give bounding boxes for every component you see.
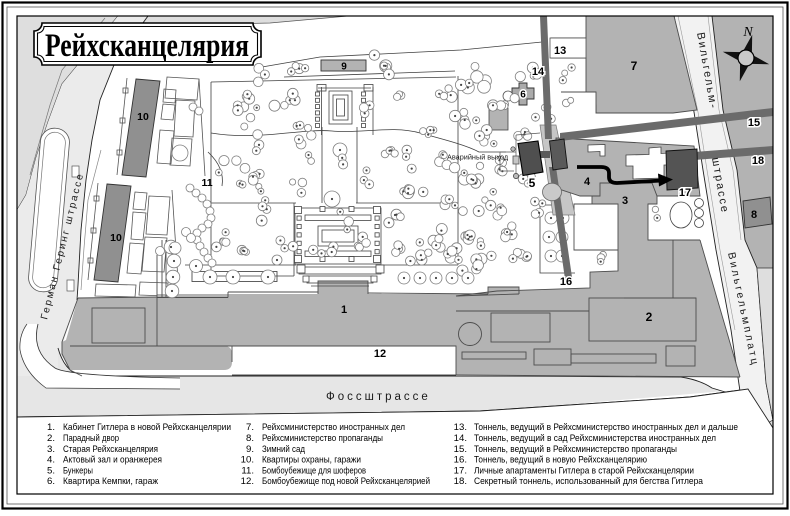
svg-text:Рейхсминистерство пропаганды: Рейхсминистерство пропаганды	[262, 433, 383, 444]
svg-text:6: 6	[520, 90, 526, 101]
svg-text:12: 12	[374, 348, 386, 360]
svg-text:Актовый зал и оранжерея: Актовый зал и оранжерея	[63, 455, 162, 466]
svg-text:3.: 3.	[47, 444, 55, 455]
svg-text:Зимний сад: Зимний сад	[262, 444, 305, 455]
svg-text:2: 2	[646, 310, 653, 324]
svg-text:Секретный тоннель, использован: Секретный тоннель, использованный для бе…	[474, 476, 704, 487]
svg-text:5: 5	[529, 176, 536, 190]
svg-text:Личные апартаменты Гитлера в с: Личные апартаменты Гитлера в старой Рейх…	[474, 465, 694, 476]
svg-text:18.: 18.	[454, 476, 467, 487]
svg-text:Квартира Кемпки, гараж: Квартира Кемпки, гараж	[63, 476, 159, 487]
svg-text:10.: 10.	[241, 455, 254, 466]
svg-text:8.: 8.	[246, 433, 254, 444]
svg-text:14.: 14.	[454, 433, 467, 444]
svg-text:16: 16	[560, 276, 572, 288]
svg-text:1.: 1.	[47, 422, 55, 433]
svg-text:15.: 15.	[454, 444, 467, 455]
svg-text:3: 3	[622, 195, 628, 207]
svg-text:9.: 9.	[246, 444, 254, 455]
svg-text:8: 8	[751, 209, 757, 221]
svg-text:Квартиры охраны, гаражи: Квартиры охраны, гаражи	[262, 455, 361, 466]
svg-text:2.: 2.	[47, 433, 55, 444]
svg-text:14: 14	[532, 66, 545, 78]
svg-text:Рейхсминистерство иностранных: Рейхсминистерство иностранных дел	[262, 422, 405, 433]
svg-text:Тоннель, ведущий в Рейхсминист: Тоннель, ведущий в Рейхсминистерство ино…	[474, 422, 738, 433]
svg-text:Парадный двор: Парадный двор	[63, 433, 119, 444]
svg-text:11: 11	[201, 177, 212, 189]
svg-text:15: 15	[748, 117, 760, 129]
svg-text:Аварийный выход: Аварийный выход	[447, 153, 509, 162]
svg-text:6.: 6.	[47, 476, 55, 487]
svg-text:17.: 17.	[454, 465, 467, 476]
svg-text:12.: 12.	[241, 476, 254, 487]
svg-text:17: 17	[679, 187, 691, 199]
svg-text:Бункеры: Бункеры	[63, 465, 93, 476]
svg-text:N: N	[742, 25, 753, 40]
svg-text:11.: 11.	[241, 465, 254, 476]
svg-text:18: 18	[752, 155, 764, 167]
svg-text:Тоннель, ведущий в Рейхсминист: Тоннель, ведущий в Рейхсминистерство про…	[474, 444, 677, 455]
svg-text:Старая Рейхсканцелярия: Старая Рейхсканцелярия	[63, 444, 158, 455]
svg-text:7.: 7.	[246, 422, 254, 433]
svg-text:9: 9	[341, 62, 347, 73]
svg-text:4: 4	[584, 176, 591, 188]
svg-text:Бомбоубежище для шоферов: Бомбоубежище для шоферов	[262, 465, 366, 476]
svg-text:Рейхсканцелярия: Рейхсканцелярия	[45, 28, 249, 64]
svg-text:Тоннель, ведущий в новую Рейхс: Тоннель, ведущий в новую Рейхсканцелярию	[474, 455, 647, 466]
svg-text:10: 10	[137, 111, 149, 123]
svg-text:13.: 13.	[454, 422, 467, 433]
svg-text:Бомбоубежище под новой Рейхска: Бомбоубежище под новой Рейхсканцелярией	[262, 476, 430, 487]
svg-text:16.: 16.	[454, 455, 467, 466]
svg-text:13: 13	[554, 45, 566, 57]
svg-text:4.: 4.	[47, 455, 55, 466]
svg-text:1: 1	[341, 304, 347, 316]
svg-text:Тоннель, ведущий в сад Рейхсми: Тоннель, ведущий в сад Рейхсминистерства…	[474, 433, 716, 444]
svg-text:Кабинет Гитлера в новой Рейхск: Кабинет Гитлера в новой Рейхсканцелярии	[63, 422, 231, 433]
svg-text:Фоссштрассе: Фоссштрассе	[326, 391, 431, 403]
svg-text:10: 10	[110, 232, 122, 244]
svg-text:7: 7	[631, 59, 638, 73]
svg-text:5.: 5.	[47, 465, 55, 476]
